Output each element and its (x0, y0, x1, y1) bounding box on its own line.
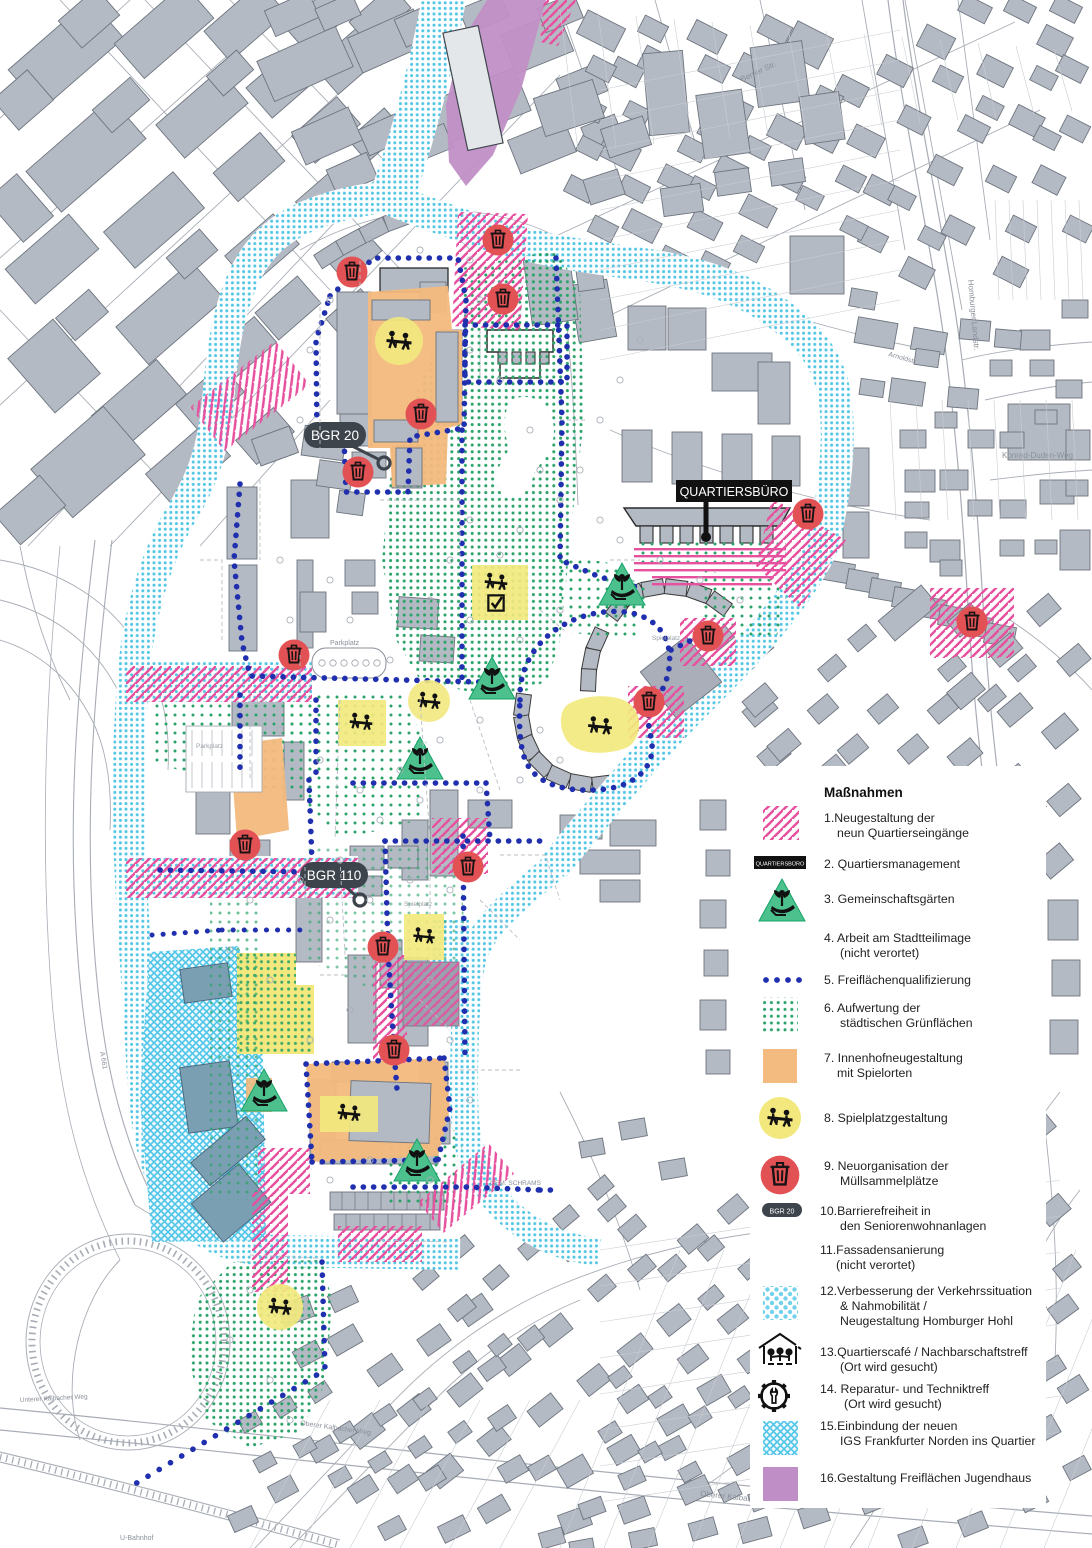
svg-text:13.Quartierscafé / Nachbarsch: 13.Quartierscafé / Nachbarschaftstreff (820, 1345, 1028, 1359)
svg-text:5. Freiflächenqualifizierung: 5. Freiflächenqualifizierung (824, 973, 971, 987)
svg-text:& Nahmobilität /: & Nahmobilität / (840, 1299, 927, 1313)
svg-text:(Ort wird gesucht): (Ort wird gesucht) (844, 1397, 942, 1411)
svg-text:neun Quartierseingänge: neun Quartierseingänge (837, 826, 969, 840)
svg-text:7. Innenhofneugestaltung: 7. Innenhofneugestaltung (824, 1051, 963, 1065)
svg-text:15.Einbindung der neuen: 15.Einbindung der neuen (820, 1419, 958, 1433)
svg-text:Müllsammelplätze: Müllsammelplätze (840, 1174, 939, 1188)
svg-text:12.Verbesserung der Verkehrssi: 12.Verbesserung der Verkehrssituation (820, 1284, 1032, 1298)
svg-text:mit Spielorten: mit Spielorten (837, 1066, 912, 1080)
svg-text:IGS Frankfurter Norden ins Qua: IGS Frankfurter Norden ins Quartier (840, 1434, 1035, 1448)
svg-text:Parkplatz: Parkplatz (196, 743, 223, 750)
svg-text:2. Quartiersmanagement: 2. Quartiersmanagement (824, 857, 961, 871)
svg-text:14. Reparatur- und Techniktref: 14. Reparatur- und Techniktreff (820, 1382, 990, 1396)
svg-text:U-Bahnhof: U-Bahnhof (120, 1535, 154, 1542)
svg-text:1.Neugestaltung der: 1.Neugestaltung der (824, 811, 935, 825)
svg-text:BGR 20: BGR 20 (311, 428, 359, 443)
svg-text:GEM. SCHRAMS: GEM. SCHRAMS (490, 1180, 542, 1187)
svg-text:Spielplatz: Spielplatz (652, 635, 680, 642)
svg-text:den Seniorenwohnanlagen: den Seniorenwohnanlagen (840, 1219, 986, 1233)
svg-text:16.Gestaltung Freiflächen Juge: 16.Gestaltung Freiflächen Jugendhaus (820, 1471, 1031, 1485)
svg-text:3. Gemeinschaftsgärten: 3. Gemeinschaftsgärten (824, 892, 955, 906)
svg-text:6. Aufwertung der: 6. Aufwertung der (824, 1001, 920, 1015)
svg-text:Parkplatz: Parkplatz (330, 640, 360, 647)
svg-text:11.Fassadensanierung: 11.Fassadensanierung (820, 1243, 944, 1257)
svg-text:BGR 20: BGR 20 (770, 1209, 795, 1216)
svg-text:Maßnahmen: Maßnahmen (824, 785, 903, 800)
svg-text:QUARTIERSBÜRO: QUARTIERSBÜRO (680, 485, 789, 499)
svg-text:(nicht verortet): (nicht verortet) (836, 1258, 915, 1272)
svg-text:(Ort wird gesucht): (Ort wird gesucht) (840, 1360, 938, 1374)
svg-text:städtischen Grünflächen: städtischen Grünflächen (840, 1016, 973, 1030)
svg-text:4. Arbeit am Stadtteilimage: 4. Arbeit am Stadtteilimage (824, 931, 971, 945)
svg-text:Spielplatz: Spielplatz (404, 901, 432, 908)
svg-text:(nicht verortet): (nicht verortet) (840, 946, 919, 960)
svg-text:Konrad-Duden-Weg: Konrad-Duden-Weg (1002, 451, 1073, 460)
svg-text:Neugestaltung Homburger Hohl: Neugestaltung Homburger Hohl (840, 1314, 1013, 1328)
svg-text:QUARTIERSBÜRO: QUARTIERSBÜRO (756, 861, 805, 868)
svg-text:BGR 110: BGR 110 (307, 868, 362, 883)
svg-text:9. Neuorganisation der: 9. Neuorganisation der (824, 1159, 948, 1173)
svg-text:10.Barrierefreiheit in: 10.Barrierefreiheit in (820, 1204, 931, 1218)
svg-text:8. Spielplatzgestaltung: 8. Spielplatzgestaltung (824, 1111, 948, 1125)
